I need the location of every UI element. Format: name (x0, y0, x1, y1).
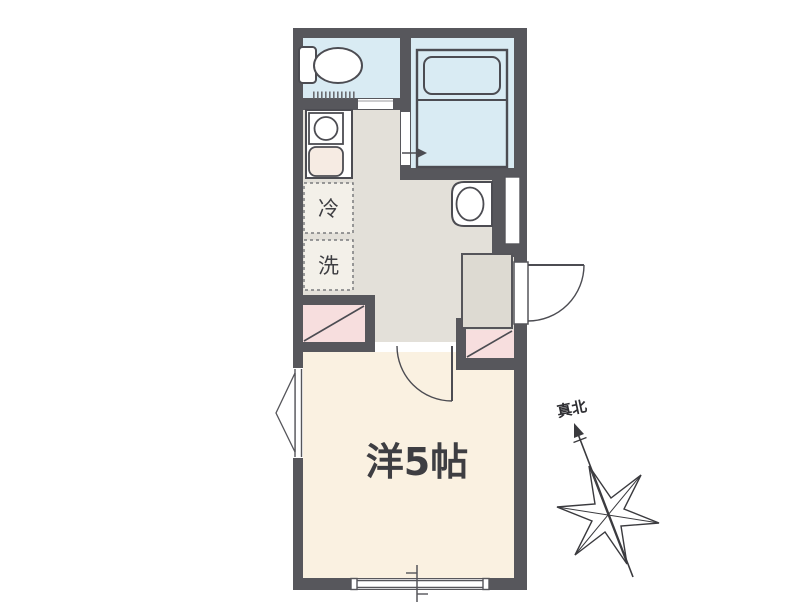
front-door (514, 262, 584, 324)
main-room-top-wall-right (456, 358, 527, 370)
window-cap-right (483, 579, 489, 590)
north-label: 真北 (555, 397, 588, 421)
window-swing-icon (276, 373, 295, 452)
front-door-jamb (514, 262, 528, 324)
washbasin-icon (452, 182, 492, 226)
floor-plan: 冷 洗 洋5帖 (0, 0, 800, 609)
compass-rose: 真北 (555, 397, 659, 577)
sink-icon (309, 147, 343, 176)
hall-floor-closet-side (375, 295, 400, 342)
main-room-label: 洋5帖 (366, 440, 468, 484)
bath-door-opening (401, 112, 410, 165)
kitchen-counter (306, 110, 352, 178)
stove-burner-icon (315, 117, 338, 140)
north-arrow-head-icon (574, 423, 584, 438)
hall-floor (400, 180, 458, 342)
floor-plan-drawing: 冷 洗 洋5帖 (0, 0, 800, 609)
room-door-opening (375, 342, 456, 352)
wall-stub-alcove (492, 175, 505, 247)
toilet-icon (299, 47, 362, 83)
window-cap-left (351, 579, 357, 590)
refrigerator-label: 冷 (318, 197, 339, 221)
washer-label: 洗 (318, 254, 339, 278)
left-window (276, 368, 303, 458)
front-door-swing-arc (528, 265, 584, 321)
side-window (505, 177, 520, 244)
genkan-step (462, 254, 512, 328)
